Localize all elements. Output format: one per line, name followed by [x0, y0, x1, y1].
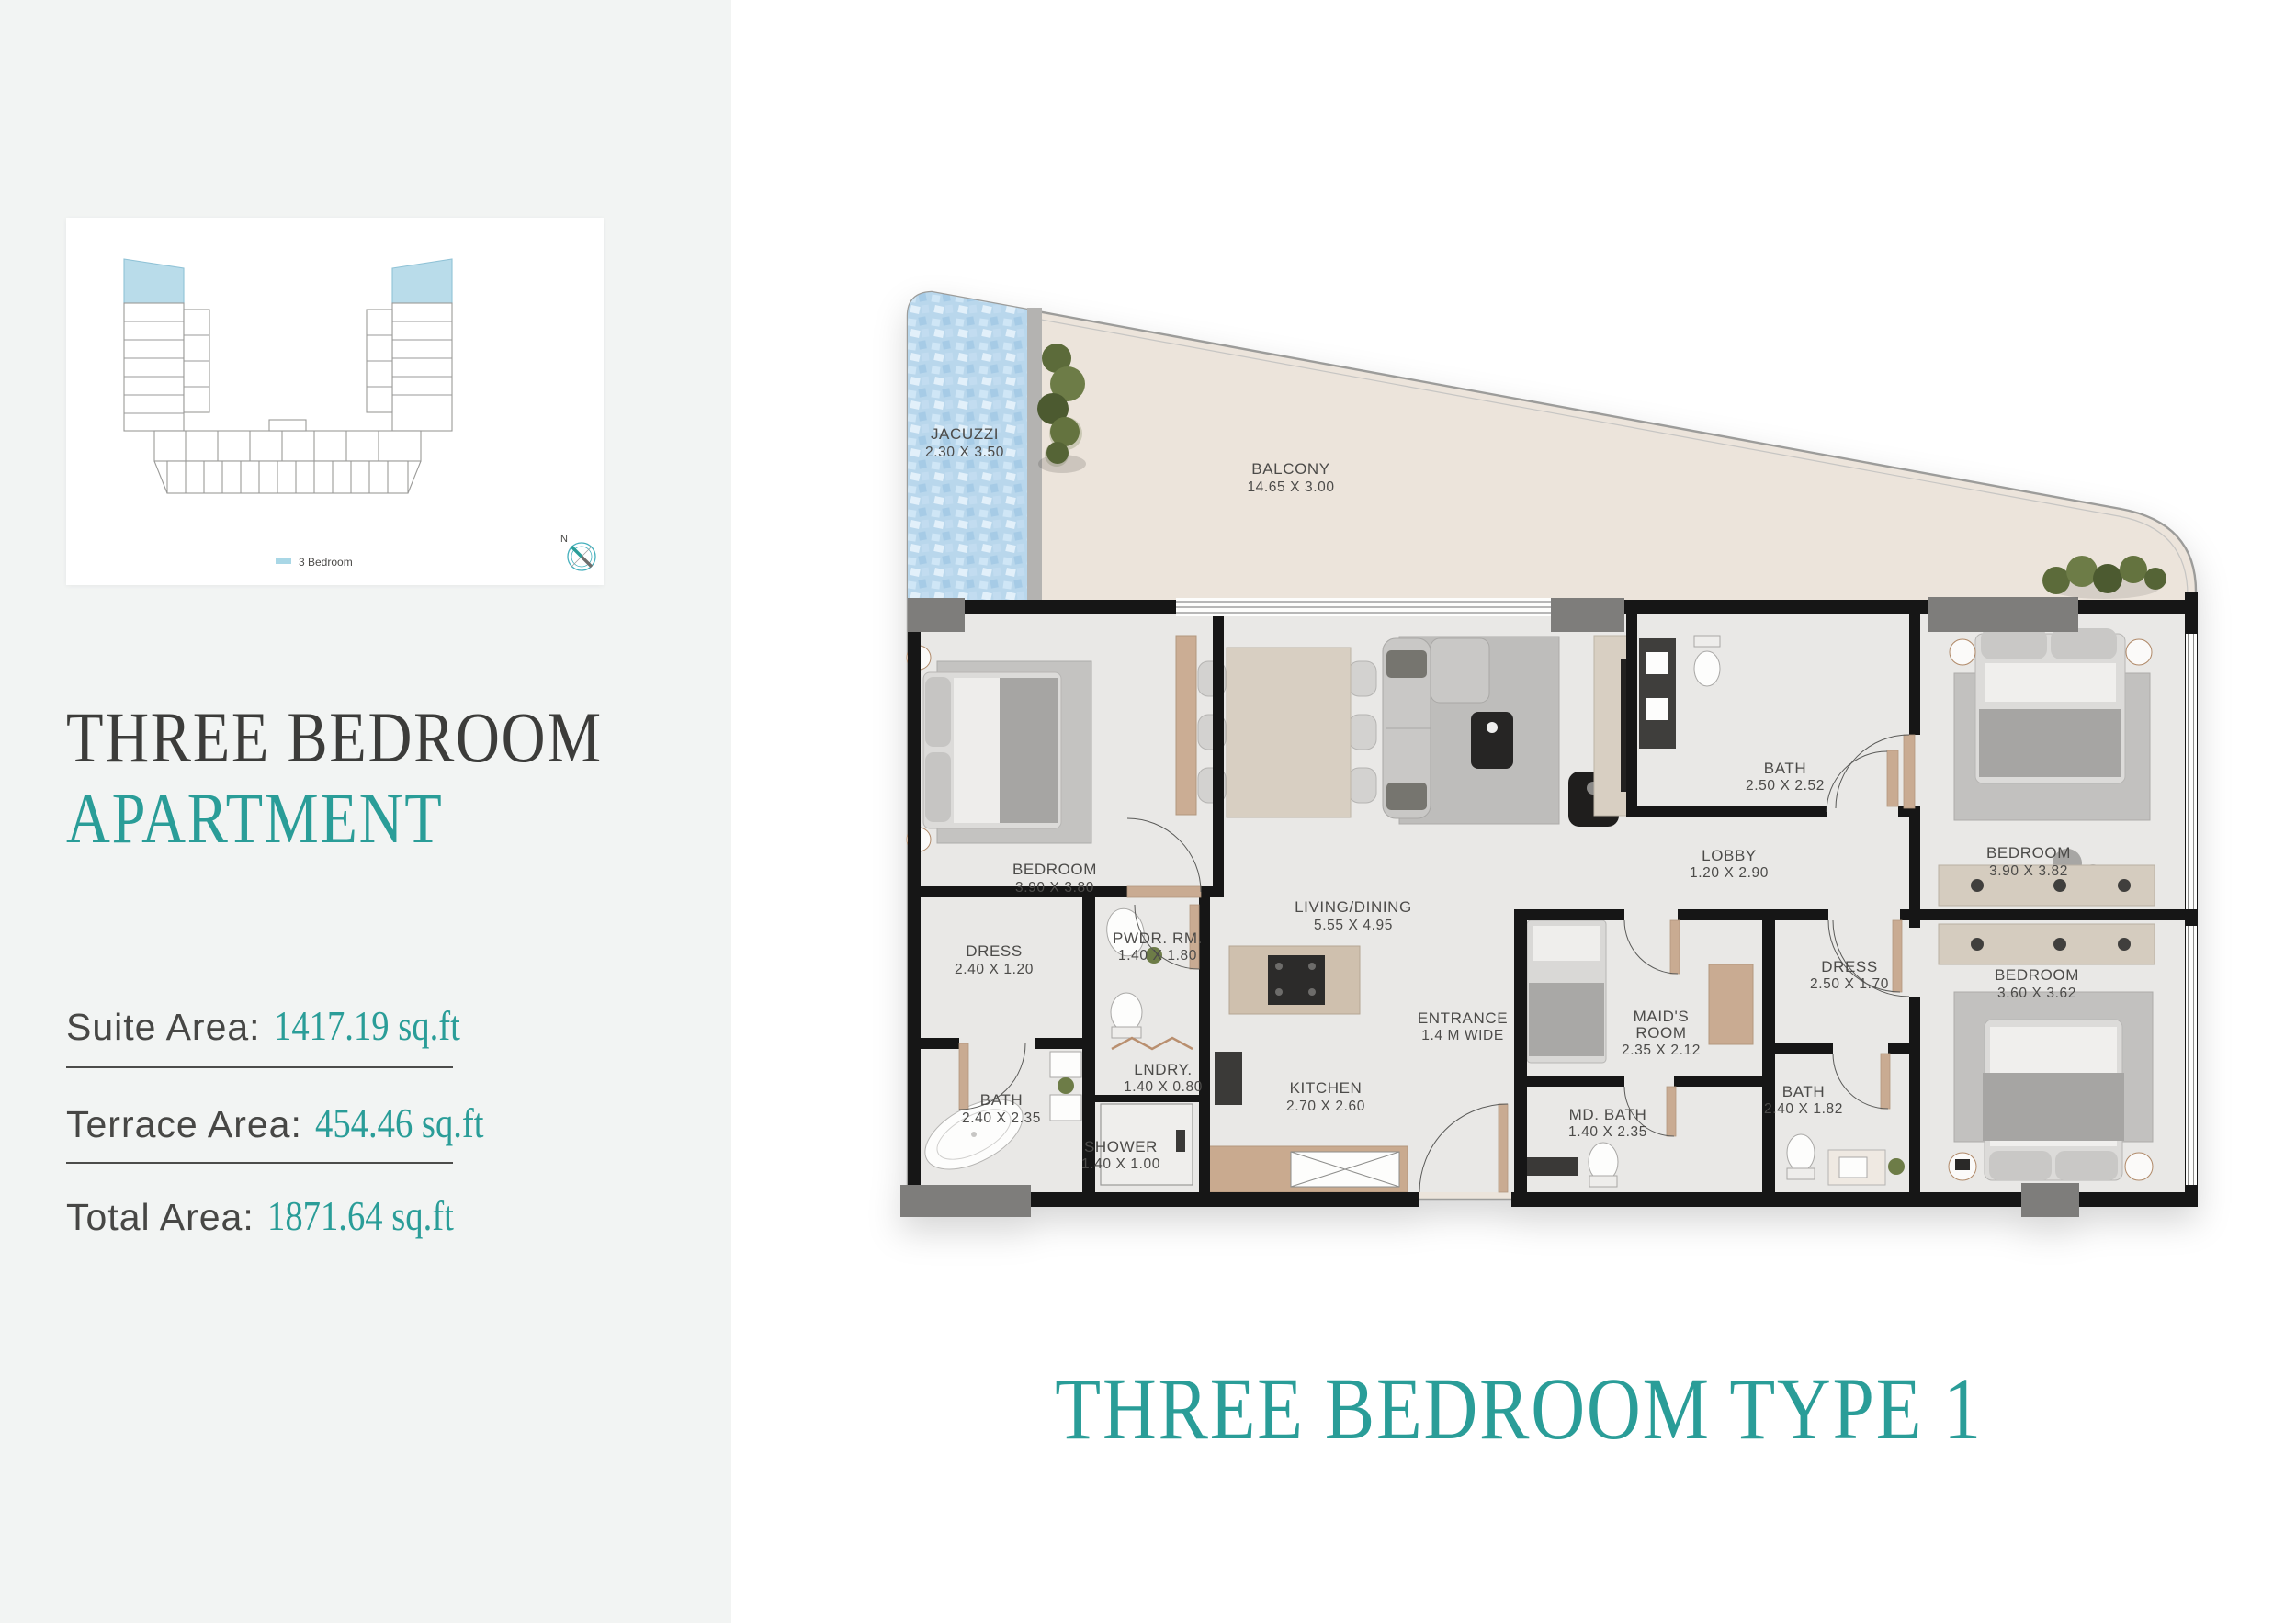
bedroom1-dresser — [1176, 636, 1196, 815]
terrace-area-value: 454.46 sq.ft — [315, 1099, 484, 1147]
brochure-page: { "sidebar": { "overview_card": { "legen… — [0, 0, 2296, 1623]
room-label-pwdr: PWDR. RM. — [1113, 930, 1203, 947]
room-dims-bedroom2: 3.90 X 3.82 — [1989, 863, 2068, 879]
divider — [66, 1162, 453, 1164]
room-label-balcony: BALCONY — [1251, 460, 1329, 478]
building-outline — [124, 259, 452, 493]
room-label-dress1: DRESS — [966, 942, 1023, 960]
legend-label: 3 Bedroom — [299, 556, 353, 569]
room-dims-kitchen: 2.70 X 2.60 — [1286, 1099, 1365, 1114]
compass-icon: N — [560, 534, 595, 570]
dining-table — [1227, 648, 1351, 817]
room-label-living: LIVING/DINING — [1295, 898, 1412, 916]
room-dims-lobby: 1.20 X 2.90 — [1690, 865, 1769, 881]
room-dims-jacuzzi: 2.30 X 3.50 — [925, 445, 1004, 460]
unit-highlight-right — [392, 259, 452, 303]
room-dims-entrance: 1.4 M WIDE — [1421, 1028, 1504, 1043]
room-label-bath1: BATH — [980, 1091, 1023, 1109]
room-label-bedroom3: BEDROOM — [1995, 966, 2079, 984]
room-label-mdbath: MD. BATH — [1569, 1106, 1647, 1123]
total-area-row: Total Area: 1871.64 sq.ft — [66, 1191, 490, 1240]
room-dims-bedroom1: 3.90 X 3.80 — [1015, 880, 1094, 896]
suite-area-value: 1417.19 sq.ft — [274, 1001, 460, 1050]
room-label-lobby: LOBBY — [1702, 847, 1757, 864]
tv — [1621, 659, 1627, 792]
room-label-lndry: LNDRY. — [1134, 1061, 1192, 1078]
floor-plan: JACUZZI 2.30 X 3.50 BALCONY 14.65 X 3.00… — [882, 220, 2214, 1249]
fridge — [1215, 1052, 1242, 1105]
room-dims-bath3: 2.40 X 1.82 — [1764, 1101, 1843, 1117]
legend-swatch-icon — [276, 558, 291, 564]
coffee-table — [1471, 712, 1513, 769]
room-dims-living: 5.55 X 4.95 — [1314, 918, 1393, 933]
divider — [66, 1066, 453, 1068]
unit-highlight-left — [124, 259, 184, 303]
cooktop — [1268, 955, 1325, 1005]
suite-area-row: Suite Area: 1417.19 sq.ft — [66, 1001, 496, 1050]
room-dims-dress2: 2.50 X 1.70 — [1810, 976, 1889, 992]
room-dims-pwdr: 1.40 X 1.80 — [1118, 948, 1197, 964]
room-dims-maids: 2.35 X 2.12 — [1622, 1043, 1701, 1058]
room-dims-bath1: 2.40 X 2.35 — [962, 1110, 1041, 1126]
room-dims-balcony: 14.65 X 3.00 — [1247, 479, 1334, 495]
room-dims-lndry: 1.40 X 0.80 — [1124, 1079, 1203, 1095]
room-dims-mdbath: 1.40 X 2.35 — [1568, 1124, 1647, 1140]
building-overview-card: 3 Bedroom N — [66, 218, 604, 585]
room-label-maids-1: MAID'S — [1634, 1008, 1690, 1025]
terrace-area-label: Terrace Area: — [66, 1103, 302, 1145]
suite-area-label: Suite Area: — [66, 1006, 261, 1048]
room-label-jacuzzi: JACUZZI — [931, 425, 999, 443]
legend: 3 Bedroom — [276, 556, 353, 569]
room-label-bedroom2: BEDROOM — [1986, 844, 2071, 862]
plan-footer-title: THREE BEDROOM TYPE 1 — [1055, 1358, 1982, 1460]
room-dims-bedroom3: 3.60 X 3.62 — [1997, 986, 2076, 1001]
room-label-bath2: BATH — [1764, 760, 1806, 777]
page-title-line2: APARTMENT — [66, 777, 443, 860]
building-overview-drawing: 3 Bedroom N — [66, 218, 604, 585]
compass-north-label: N — [560, 534, 568, 545]
room-label-dress2: DRESS — [1821, 958, 1878, 975]
room-dims-bath2: 2.50 X 2.52 — [1746, 778, 1825, 794]
room-label-entrance: ENTRANCE — [1418, 1009, 1508, 1027]
dining-set — [1198, 648, 1376, 817]
room-dims-dress1: 2.40 X 1.20 — [955, 962, 1034, 977]
room-label-kitchen: KITCHEN — [1290, 1079, 1363, 1097]
room-dims-shower: 1.40 X 1.00 — [1081, 1156, 1160, 1172]
sidebar: 3 Bedroom N THREE BEDROOM APARTMENT Suit… — [0, 0, 731, 1623]
total-area-label: Total Area: — [66, 1196, 254, 1238]
room-label-shower: SHOWER — [1084, 1138, 1158, 1155]
room-label-bedroom1: BEDROOM — [1012, 861, 1097, 878]
maids-wardrobe — [1709, 964, 1753, 1044]
jacuzzi-divider — [1027, 308, 1042, 600]
room-label-maids-2: ROOM — [1635, 1024, 1686, 1042]
room-label-bath3: BATH — [1782, 1083, 1825, 1100]
total-area-value: 1871.64 sq.ft — [267, 1191, 454, 1240]
page-title-line1: THREE BEDROOM — [66, 696, 603, 779]
terrace-area-row: Terrace Area: 454.46 sq.ft — [66, 1099, 516, 1147]
